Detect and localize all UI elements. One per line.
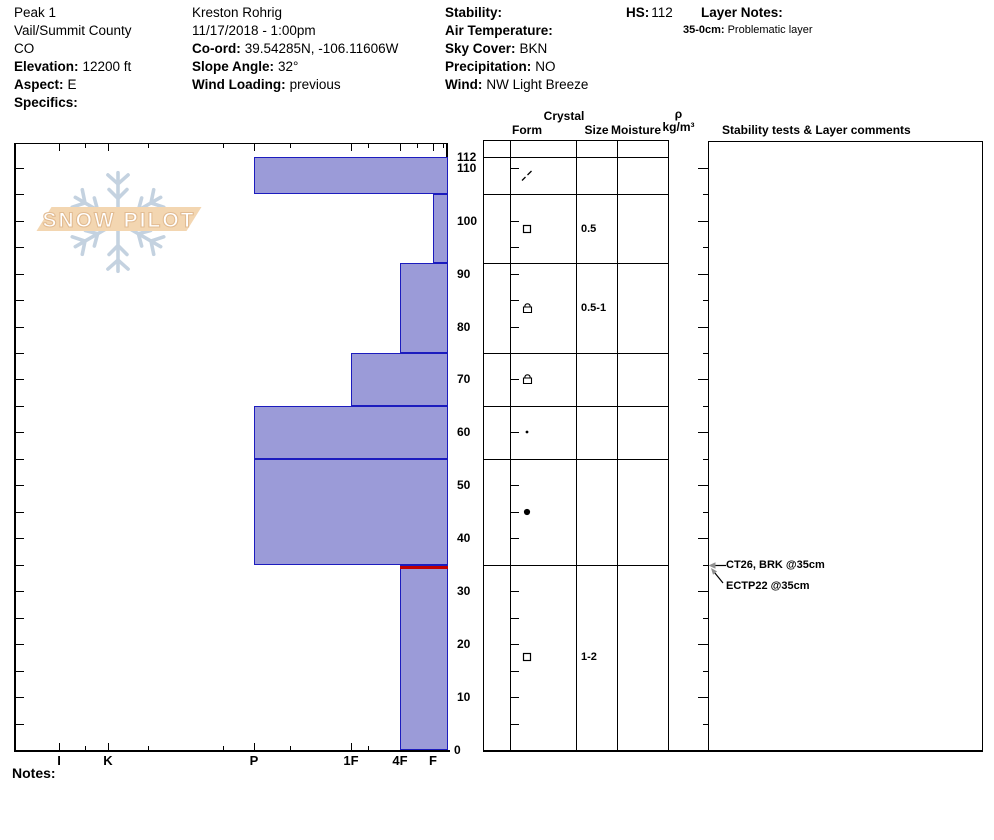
table-ruler-tick bbox=[511, 565, 519, 566]
density-ruler-tick bbox=[703, 459, 708, 460]
hardness-bar bbox=[351, 353, 448, 406]
snowpilot-profile-page: Peak 1 Vail/Summit County CO Elevation:1… bbox=[0, 0, 994, 840]
grain-form-symbol-DF bbox=[520, 169, 534, 183]
table-ruler-tick bbox=[511, 406, 519, 407]
table-ruler-tick bbox=[511, 724, 519, 725]
wind-loading: Wind Loading:previous bbox=[192, 76, 341, 94]
density-ruler-tick bbox=[703, 618, 708, 619]
hardness-minor-tick bbox=[443, 144, 444, 148]
table-bottom-line bbox=[483, 750, 983, 752]
layer-notes-heading: Layer Notes: bbox=[701, 4, 787, 22]
hardness-bar bbox=[254, 406, 448, 459]
table-row-line bbox=[483, 263, 668, 264]
grain-form-icon bbox=[520, 169, 534, 183]
table-ruler-tick bbox=[511, 485, 519, 486]
hardness-minor-tick bbox=[223, 144, 224, 148]
depth-minor-tick bbox=[16, 697, 24, 698]
depth-axis-label: 0 bbox=[454, 743, 461, 757]
density-ruler-tick bbox=[698, 644, 708, 645]
grain-form-symbol-RG bbox=[520, 505, 534, 519]
hardness-axis-label: 1F bbox=[336, 754, 366, 768]
table-ruler-tick bbox=[511, 194, 519, 195]
grain-form-icon bbox=[520, 425, 534, 439]
hardness-bar bbox=[400, 263, 448, 353]
depth-minor-tick bbox=[16, 379, 24, 380]
test-arrow-icon bbox=[706, 556, 730, 590]
depth-minor-tick bbox=[16, 194, 24, 195]
col-header-crystal: Crystal bbox=[534, 110, 594, 123]
density-ruler-tick bbox=[698, 485, 708, 486]
table-ruler-tick bbox=[511, 300, 519, 301]
slope-angle: Slope Angle:32° bbox=[192, 58, 298, 76]
hardness-major-tick bbox=[254, 743, 255, 750]
plot-top-spine bbox=[14, 143, 448, 144]
depth-axis-label: 60 bbox=[457, 425, 470, 439]
hardness-major-tick bbox=[351, 743, 352, 750]
site-specifics: Specifics: bbox=[14, 94, 82, 112]
hardness-bar bbox=[400, 565, 448, 750]
depth-axis-label: 50 bbox=[457, 478, 470, 492]
density-ruler-tick bbox=[698, 432, 708, 433]
hardness-bar bbox=[254, 157, 448, 194]
depth-axis-label: 30 bbox=[457, 584, 470, 598]
density-ruler-tick bbox=[703, 247, 708, 248]
density-ruler-tick bbox=[703, 512, 708, 513]
hardness-minor-tick bbox=[290, 144, 291, 148]
table-row-line bbox=[483, 157, 668, 158]
density-ruler-tick bbox=[698, 379, 708, 380]
table-ruler-tick bbox=[511, 512, 519, 513]
grain-form-symbol-RGsm bbox=[520, 425, 534, 439]
depth-axis-label: 10 bbox=[457, 690, 470, 704]
depth-axis-label: 100 bbox=[457, 214, 477, 228]
grain-form-icon bbox=[520, 372, 534, 386]
density-ruler-tick bbox=[698, 221, 708, 222]
snow-height-field: HS:112 bbox=[626, 4, 673, 22]
grain-form-symbol-FCxr bbox=[520, 372, 534, 386]
layer-note: 35-0cm:Problematic layer bbox=[683, 24, 813, 37]
observation-coordinates: Co-ord:39.54285N, -106.11606W bbox=[192, 40, 398, 58]
grain-form-icon bbox=[520, 222, 534, 236]
depth-axis-label: 110 bbox=[457, 161, 476, 175]
air-temperature-field: Air Temperature: bbox=[445, 22, 557, 40]
density-ruler-tick bbox=[703, 353, 708, 354]
table-top-line bbox=[483, 140, 668, 141]
hardness-major-tick bbox=[351, 144, 352, 151]
density-ruler-tick bbox=[703, 300, 708, 301]
hardness-minor-tick bbox=[417, 144, 418, 148]
depth-minor-tick bbox=[16, 353, 24, 354]
hardness-minor-tick bbox=[85, 746, 86, 750]
depth-minor-tick bbox=[16, 512, 24, 513]
density-ruler-tick bbox=[698, 538, 708, 539]
sky-cover-field: Sky Cover:BKN bbox=[445, 40, 547, 58]
depth-minor-tick bbox=[16, 274, 24, 275]
table-ruler-tick bbox=[511, 274, 519, 275]
hardness-minor-tick bbox=[85, 144, 86, 148]
depth-axis-label: 80 bbox=[457, 320, 470, 334]
density-ruler-tick bbox=[698, 697, 708, 698]
site-elevation: Elevation:12200 ft bbox=[14, 58, 131, 76]
precipitation-field: Precipitation:NO bbox=[445, 58, 556, 76]
plot-left-spine bbox=[14, 143, 16, 752]
hardness-major-tick bbox=[108, 743, 109, 750]
table-ruler-tick bbox=[511, 168, 519, 169]
depth-minor-tick bbox=[16, 565, 24, 566]
depth-minor-tick bbox=[16, 459, 24, 460]
depth-minor-tick bbox=[16, 671, 24, 672]
table-vertical-line bbox=[708, 141, 709, 752]
density-ruler-tick bbox=[703, 671, 708, 672]
wind-field: Wind:NW Light Breeze bbox=[445, 76, 588, 94]
observation-datetime: 11/17/2018 - 1:00pm bbox=[192, 22, 316, 40]
depth-minor-tick bbox=[16, 300, 24, 301]
density-ruler-tick bbox=[698, 591, 708, 592]
table-vertical-line bbox=[576, 140, 577, 750]
depth-axis-label: 70 bbox=[457, 372, 470, 386]
table-ruler-tick bbox=[511, 697, 519, 698]
problem-layer-line bbox=[400, 566, 448, 569]
hardness-major-tick bbox=[400, 144, 401, 151]
depth-minor-tick bbox=[16, 644, 24, 645]
depth-minor-tick bbox=[16, 168, 24, 169]
depth-minor-tick bbox=[16, 618, 24, 619]
hardness-bar bbox=[254, 459, 448, 565]
table-ruler-tick bbox=[511, 327, 519, 328]
grain-size-value: 1-2 bbox=[581, 650, 597, 664]
hardness-axis-label: I bbox=[44, 754, 74, 768]
logo-text: SNOW PILOT bbox=[42, 209, 196, 233]
hardness-major-tick bbox=[59, 144, 60, 151]
table-ruler-tick bbox=[511, 379, 519, 380]
density-ruler-tick bbox=[703, 565, 708, 566]
stability-test-ct: CT26, BRK @35cm bbox=[726, 559, 825, 572]
depth-axis-label: 40 bbox=[457, 531, 470, 545]
table-ruler-tick bbox=[511, 538, 519, 539]
hardness-minor-tick bbox=[223, 746, 224, 750]
table-vertical-line bbox=[668, 140, 669, 750]
table-ruler-tick bbox=[511, 221, 519, 222]
grain-form-icon bbox=[520, 301, 534, 315]
grain-form-symbol-FC bbox=[520, 222, 534, 236]
table-ruler-tick bbox=[511, 459, 519, 460]
table-top-line bbox=[708, 141, 982, 142]
hardness-major-tick bbox=[108, 144, 109, 151]
table-ruler-tick bbox=[511, 353, 519, 354]
hardness-minor-tick bbox=[368, 144, 369, 148]
hardness-minor-tick bbox=[290, 746, 291, 750]
density-ruler-tick bbox=[698, 327, 708, 328]
hardness-minor-tick bbox=[148, 144, 149, 148]
hardness-axis-label: P bbox=[239, 754, 269, 768]
depth-axis-label: 90 bbox=[457, 267, 470, 281]
density-ruler-tick bbox=[703, 194, 708, 195]
observer-name: Kreston Rohrig bbox=[192, 4, 282, 22]
hardness-bar bbox=[433, 194, 448, 263]
site-region: Vail/Summit County bbox=[14, 22, 132, 40]
table-vertical-line bbox=[510, 140, 511, 750]
depth-minor-tick bbox=[16, 724, 24, 725]
hardness-axis-label: 4F bbox=[385, 754, 415, 768]
density-ruler-tick bbox=[698, 168, 708, 169]
hardness-axis-label: F bbox=[418, 754, 448, 768]
hardness-axis-label: K bbox=[93, 754, 123, 768]
depth-minor-tick bbox=[16, 221, 24, 222]
depth-minor-tick bbox=[16, 538, 24, 539]
depth-minor-tick bbox=[16, 591, 24, 592]
density-ruler-tick bbox=[703, 724, 708, 725]
grain-size-value: 0.5 bbox=[581, 222, 596, 236]
depth-minor-tick bbox=[16, 432, 24, 433]
table-ruler-tick bbox=[511, 247, 519, 248]
depth-axis-label: 20 bbox=[457, 637, 470, 651]
site-aspect: Aspect:E bbox=[14, 76, 77, 94]
hardness-major-tick bbox=[254, 144, 255, 151]
table-ruler-tick bbox=[511, 618, 519, 619]
col-header-moisture: Moisture bbox=[611, 124, 661, 137]
table-vertical-line bbox=[483, 140, 484, 750]
table-ruler-tick bbox=[511, 644, 519, 645]
table-ruler-tick bbox=[511, 432, 519, 433]
density-ruler-tick bbox=[698, 274, 708, 275]
col-header-stability-tests: Stability tests & Layer comments bbox=[722, 124, 911, 137]
plot-bottom-spine bbox=[14, 750, 450, 752]
depth-minor-tick bbox=[16, 485, 24, 486]
density-ruler-tick bbox=[703, 406, 708, 407]
col-header-form: Form bbox=[512, 124, 542, 137]
col-header-density-units: kg/m³ bbox=[656, 121, 701, 134]
grain-size-value: 0.5-1 bbox=[581, 301, 606, 315]
table-ruler-tick bbox=[511, 591, 519, 592]
grain-form-symbol-FC bbox=[520, 650, 534, 664]
hardness-major-tick bbox=[59, 743, 60, 750]
depth-minor-tick bbox=[16, 247, 24, 248]
stability-test-ect: ECTP22 @35cm bbox=[726, 580, 810, 593]
hardness-minor-tick bbox=[368, 746, 369, 750]
table-ruler-tick bbox=[511, 671, 519, 672]
site-state: CO bbox=[14, 40, 34, 58]
stability-field: Stability: bbox=[445, 4, 506, 22]
grain-form-icon bbox=[520, 505, 534, 519]
site-name: Peak 1 bbox=[14, 4, 56, 22]
grain-form-icon bbox=[520, 650, 534, 664]
table-vertical-line bbox=[982, 141, 983, 752]
hardness-major-tick bbox=[433, 144, 434, 151]
hardness-minor-tick bbox=[148, 746, 149, 750]
depth-minor-tick bbox=[16, 406, 24, 407]
grain-form-symbol-FCxr bbox=[520, 301, 534, 315]
depth-minor-tick bbox=[16, 327, 24, 328]
table-vertical-line bbox=[617, 140, 618, 750]
